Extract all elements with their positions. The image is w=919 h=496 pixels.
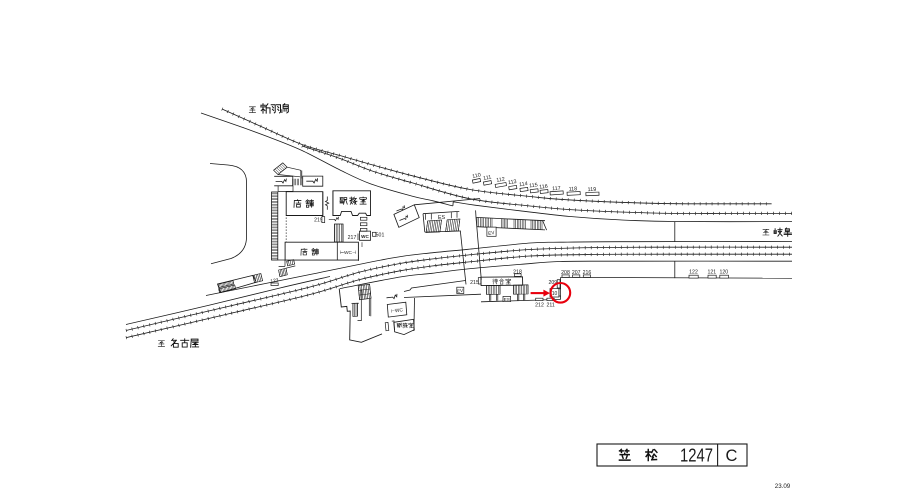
svg-text:118: 118 — [568, 186, 577, 192]
svg-text:117: 117 — [552, 186, 561, 193]
svg-text:501: 501 — [376, 233, 385, 239]
svg-text:C: C — [726, 447, 738, 465]
svg-text:119: 119 — [587, 187, 596, 193]
svg-text:⊢WC⊣: ⊢WC⊣ — [340, 249, 356, 256]
svg-text:23.09: 23.09 — [775, 483, 791, 490]
svg-text:WC: WC — [361, 234, 369, 239]
svg-text:114: 114 — [519, 181, 528, 188]
svg-text:1247: 1247 — [680, 445, 713, 466]
svg-text:ES: ES — [504, 297, 510, 303]
svg-text:10: 10 — [552, 291, 558, 297]
svg-text:217: 217 — [348, 235, 357, 241]
svg-text:211: 211 — [547, 302, 555, 308]
svg-text:121: 121 — [707, 269, 716, 275]
svg-text:122: 122 — [689, 269, 698, 275]
svg-text:212: 212 — [535, 302, 544, 308]
svg-text:120: 120 — [719, 269, 728, 275]
svg-text:116: 116 — [539, 184, 548, 191]
svg-text:115: 115 — [529, 182, 538, 189]
svg-text:215: 215 — [470, 280, 479, 286]
